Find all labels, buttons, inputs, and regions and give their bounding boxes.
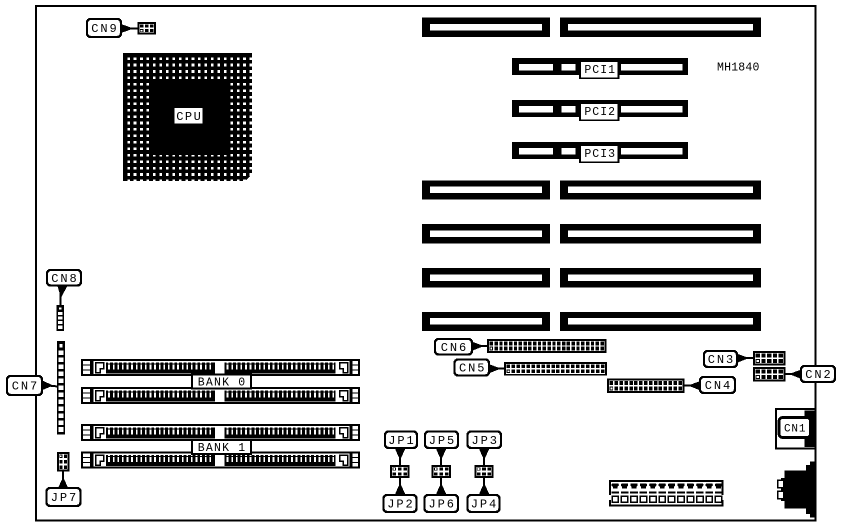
svg-text:JP2: JP2 (387, 498, 414, 512)
svg-text:CN3: CN3 (708, 353, 735, 367)
svg-text:BANK 1: BANK 1 (198, 442, 247, 455)
svg-text:JP7: JP7 (51, 491, 78, 505)
svg-text:CN4: CN4 (705, 379, 732, 393)
svg-text:PCI2: PCI2 (584, 106, 616, 119)
svg-text:JP4: JP4 (471, 498, 498, 512)
svg-text:CN8: CN8 (51, 272, 78, 286)
svg-text:CN1: CN1 (784, 424, 806, 436)
svg-text:BANK 0: BANK 0 (198, 377, 247, 390)
svg-text:JP3: JP3 (472, 434, 499, 448)
svg-text:CN9: CN9 (91, 22, 118, 36)
svg-text:PCI1: PCI1 (584, 64, 616, 77)
svg-text:CN7: CN7 (12, 380, 39, 394)
svg-text:CN6: CN6 (441, 341, 468, 355)
svg-text:JP5: JP5 (429, 434, 456, 448)
svg-text:CN2: CN2 (805, 368, 832, 382)
svg-text:JP1: JP1 (388, 434, 415, 448)
svg-text:JP6: JP6 (429, 498, 456, 512)
svg-text:MH1840: MH1840 (717, 62, 760, 75)
svg-text:CPU: CPU (176, 110, 202, 124)
svg-text:CN5: CN5 (459, 362, 486, 376)
svg-text:PCI3: PCI3 (584, 148, 616, 161)
